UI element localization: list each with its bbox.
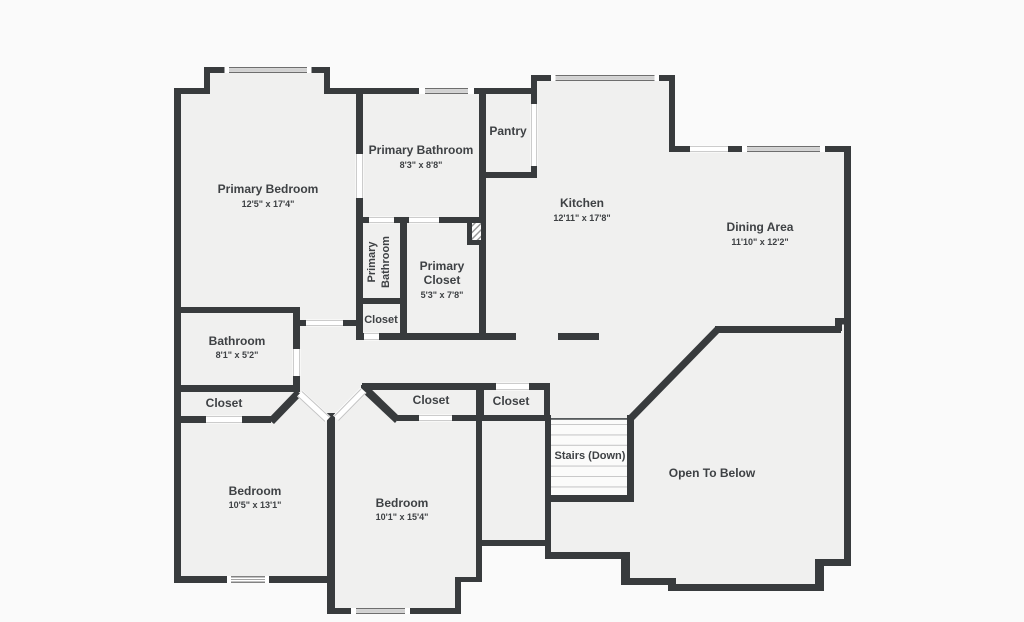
svg-text:Closet: Closet	[206, 396, 243, 410]
svg-text:Primary: Primary	[366, 241, 378, 283]
svg-text:Bathroom: Bathroom	[380, 236, 392, 288]
svg-text:Bedroom: Bedroom	[229, 484, 282, 498]
svg-text:Open To Below: Open To Below	[669, 466, 756, 480]
svg-text:Closet: Closet	[413, 393, 450, 407]
svg-text:Closet: Closet	[364, 314, 398, 326]
svg-text:5'3" x 7'8": 5'3" x 7'8"	[421, 290, 464, 300]
svg-text:Bedroom: Bedroom	[376, 496, 429, 510]
svg-text:8'3" x 8'8": 8'3" x 8'8"	[400, 160, 443, 170]
svg-text:Primary Bedroom: Primary Bedroom	[218, 182, 319, 196]
svg-text:11'10" x 12'2": 11'10" x 12'2"	[731, 237, 788, 247]
svg-text:Pantry: Pantry	[489, 124, 527, 138]
svg-text:12'5" x 17'4": 12'5" x 17'4"	[242, 199, 295, 209]
svg-text:Kitchen: Kitchen	[560, 196, 604, 210]
svg-text:Stairs (Down): Stairs (Down)	[555, 450, 626, 462]
svg-text:Bathroom: Bathroom	[209, 334, 266, 348]
svg-text:Closet: Closet	[424, 273, 461, 287]
svg-text:Primary: Primary	[420, 259, 465, 273]
svg-text:Primary Bathroom: Primary Bathroom	[369, 143, 474, 157]
svg-text:10'5" x 13'1": 10'5" x 13'1"	[229, 500, 282, 510]
svg-text:Dining Area: Dining Area	[727, 220, 794, 234]
svg-text:8'1" x 5'2": 8'1" x 5'2"	[216, 350, 259, 360]
svg-text:12'11" x 17'8": 12'11" x 17'8"	[553, 213, 610, 223]
svg-text:Closet: Closet	[493, 394, 530, 408]
svg-text:10'1" x 15'4": 10'1" x 15'4"	[376, 512, 429, 522]
